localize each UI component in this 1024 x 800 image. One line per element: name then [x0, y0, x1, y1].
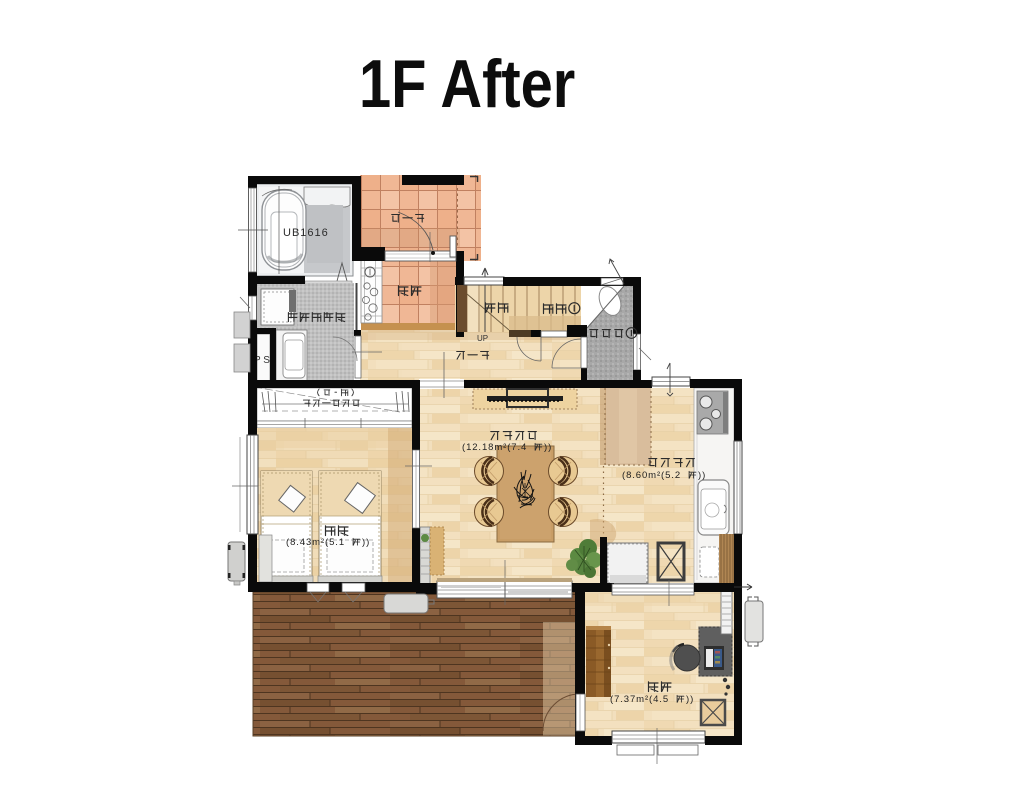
- svg-text:(8.60m²(5.2: (8.60m²(5.2: [622, 470, 681, 481]
- svg-text:(12.18m²(7.4: (12.18m²(7.4: [462, 442, 527, 453]
- svg-text:(7.37m²(4.5: (7.37m²(4.5: [610, 694, 669, 705]
- svg-text:)): )): [544, 442, 552, 453]
- svg-text:)): )): [686, 694, 694, 705]
- svg-text:)): )): [698, 470, 706, 481]
- svg-text:UB1616: UB1616: [283, 227, 329, 239]
- svg-text:UP: UP: [477, 334, 488, 343]
- svg-text:1F After: 1F After: [359, 47, 575, 122]
- svg-text:)): )): [362, 537, 370, 548]
- svg-text:(8.43m²(5.1: (8.43m²(5.1: [286, 537, 345, 548]
